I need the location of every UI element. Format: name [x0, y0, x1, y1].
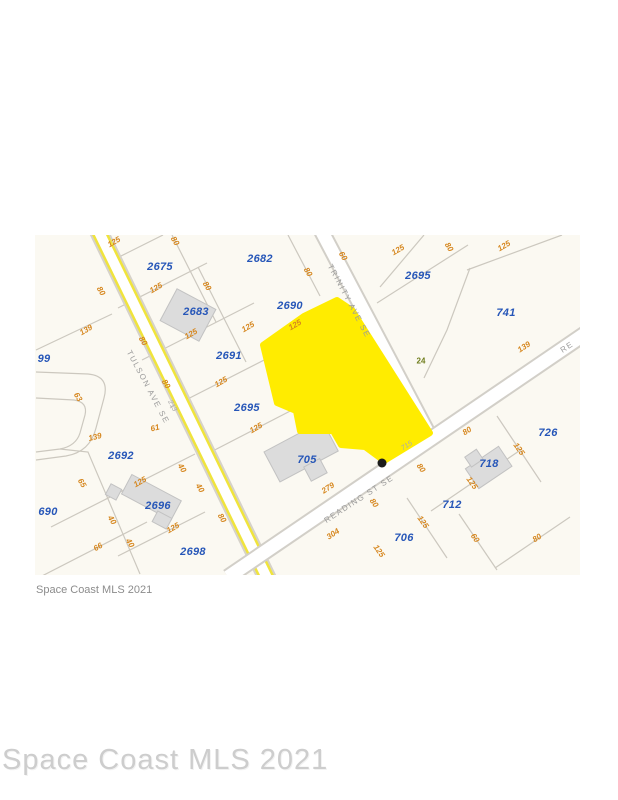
parcel-number-label: 712: [442, 499, 461, 511]
dimension-label: 80: [443, 241, 455, 253]
parcel-number-label: 2675: [147, 261, 173, 273]
dimension-label: 125: [390, 243, 406, 257]
dimension-label: 125: [248, 421, 264, 435]
dimension-label: 80: [461, 425, 473, 437]
dimension-label: 40: [124, 537, 136, 549]
dimension-label: 40: [106, 514, 118, 526]
green-marker-label: 24: [417, 357, 426, 366]
parcel-number-label: 2690: [277, 300, 303, 312]
parcel-number-label: 2698: [180, 546, 206, 558]
parcel-number-label: 2695: [405, 270, 431, 282]
reference-label: 213: [166, 399, 178, 413]
dimension-label: 304: [325, 527, 341, 542]
dimension-label: 125: [183, 327, 199, 341]
dimension-label: 139: [78, 323, 94, 337]
parcel-number-label: 741: [496, 307, 515, 319]
dimension-label: 61: [150, 423, 161, 434]
dimension-label: 60: [469, 532, 481, 544]
dimension-label: 40: [194, 482, 206, 494]
parcel-number-label: 2696: [145, 500, 171, 512]
parcel-number-label: 2692: [108, 450, 134, 462]
dimension-label: 139: [87, 431, 102, 443]
dimension-label: 125: [371, 543, 386, 559]
parcel-number-label: 706: [394, 532, 413, 544]
dimension-label: 125: [106, 235, 122, 249]
dimension-label: 63: [72, 391, 84, 403]
reference-label: 715: [400, 440, 414, 452]
parcel-number-label: 718: [479, 458, 498, 470]
dimension-label: 66: [92, 541, 104, 553]
parcel-number-label: 99: [38, 353, 51, 365]
parcel-number-label: 690: [38, 506, 57, 518]
dimension-label: 125: [165, 521, 181, 535]
copyright-text: Space Coast MLS 2021: [36, 584, 152, 596]
street-label: READING ST SE: [323, 473, 396, 525]
parcel-number-label: 2695: [234, 402, 260, 414]
dimension-label: 80: [201, 280, 213, 292]
dimension-label: 80: [302, 266, 314, 278]
watermark-text: Space Coast MLS 2021: [2, 744, 328, 777]
dimension-label: 279: [320, 481, 336, 496]
parcel-number-label: 2682: [247, 253, 273, 265]
parcel-number-label: 705: [297, 454, 316, 466]
dimension-label: 125: [415, 514, 430, 530]
map-labels: TULSON AVE SETRINITY AVE SEREADING ST SE…: [35, 235, 580, 575]
dimension-label: 80: [160, 378, 172, 390]
dimension-label: 125: [132, 475, 148, 489]
dimension-label: 80: [169, 235, 181, 247]
dimension-label: 80: [95, 285, 107, 297]
dimension-label: 60: [337, 250, 349, 262]
dimension-label: 65: [76, 477, 88, 489]
street-label: TRINITY AVE SE: [326, 263, 372, 340]
parcel-number-label: 2683: [183, 306, 209, 318]
plat-map: TULSON AVE SETRINITY AVE SEREADING ST SE…: [35, 235, 580, 575]
street-label: RE: [559, 339, 576, 354]
dimension-label: 125: [287, 318, 303, 332]
dimension-label: 125: [240, 320, 256, 334]
dimension-label: 80: [368, 497, 380, 509]
dimension-label: 125: [496, 239, 512, 253]
dimension-label: 80: [216, 512, 228, 524]
dimension-label: 125: [148, 281, 164, 295]
dimension-label: 40: [176, 462, 188, 474]
dimension-label: 125: [464, 475, 479, 491]
parcel-number-label: 726: [538, 427, 557, 439]
dimension-label: 80: [137, 335, 149, 347]
dimension-label: 125: [511, 441, 526, 457]
dimension-label: 80: [415, 462, 427, 474]
dimension-label: 80: [531, 532, 543, 544]
dimension-label: 125: [213, 375, 229, 389]
dimension-label: 139: [516, 340, 532, 355]
parcel-number-label: 2691: [216, 350, 242, 362]
